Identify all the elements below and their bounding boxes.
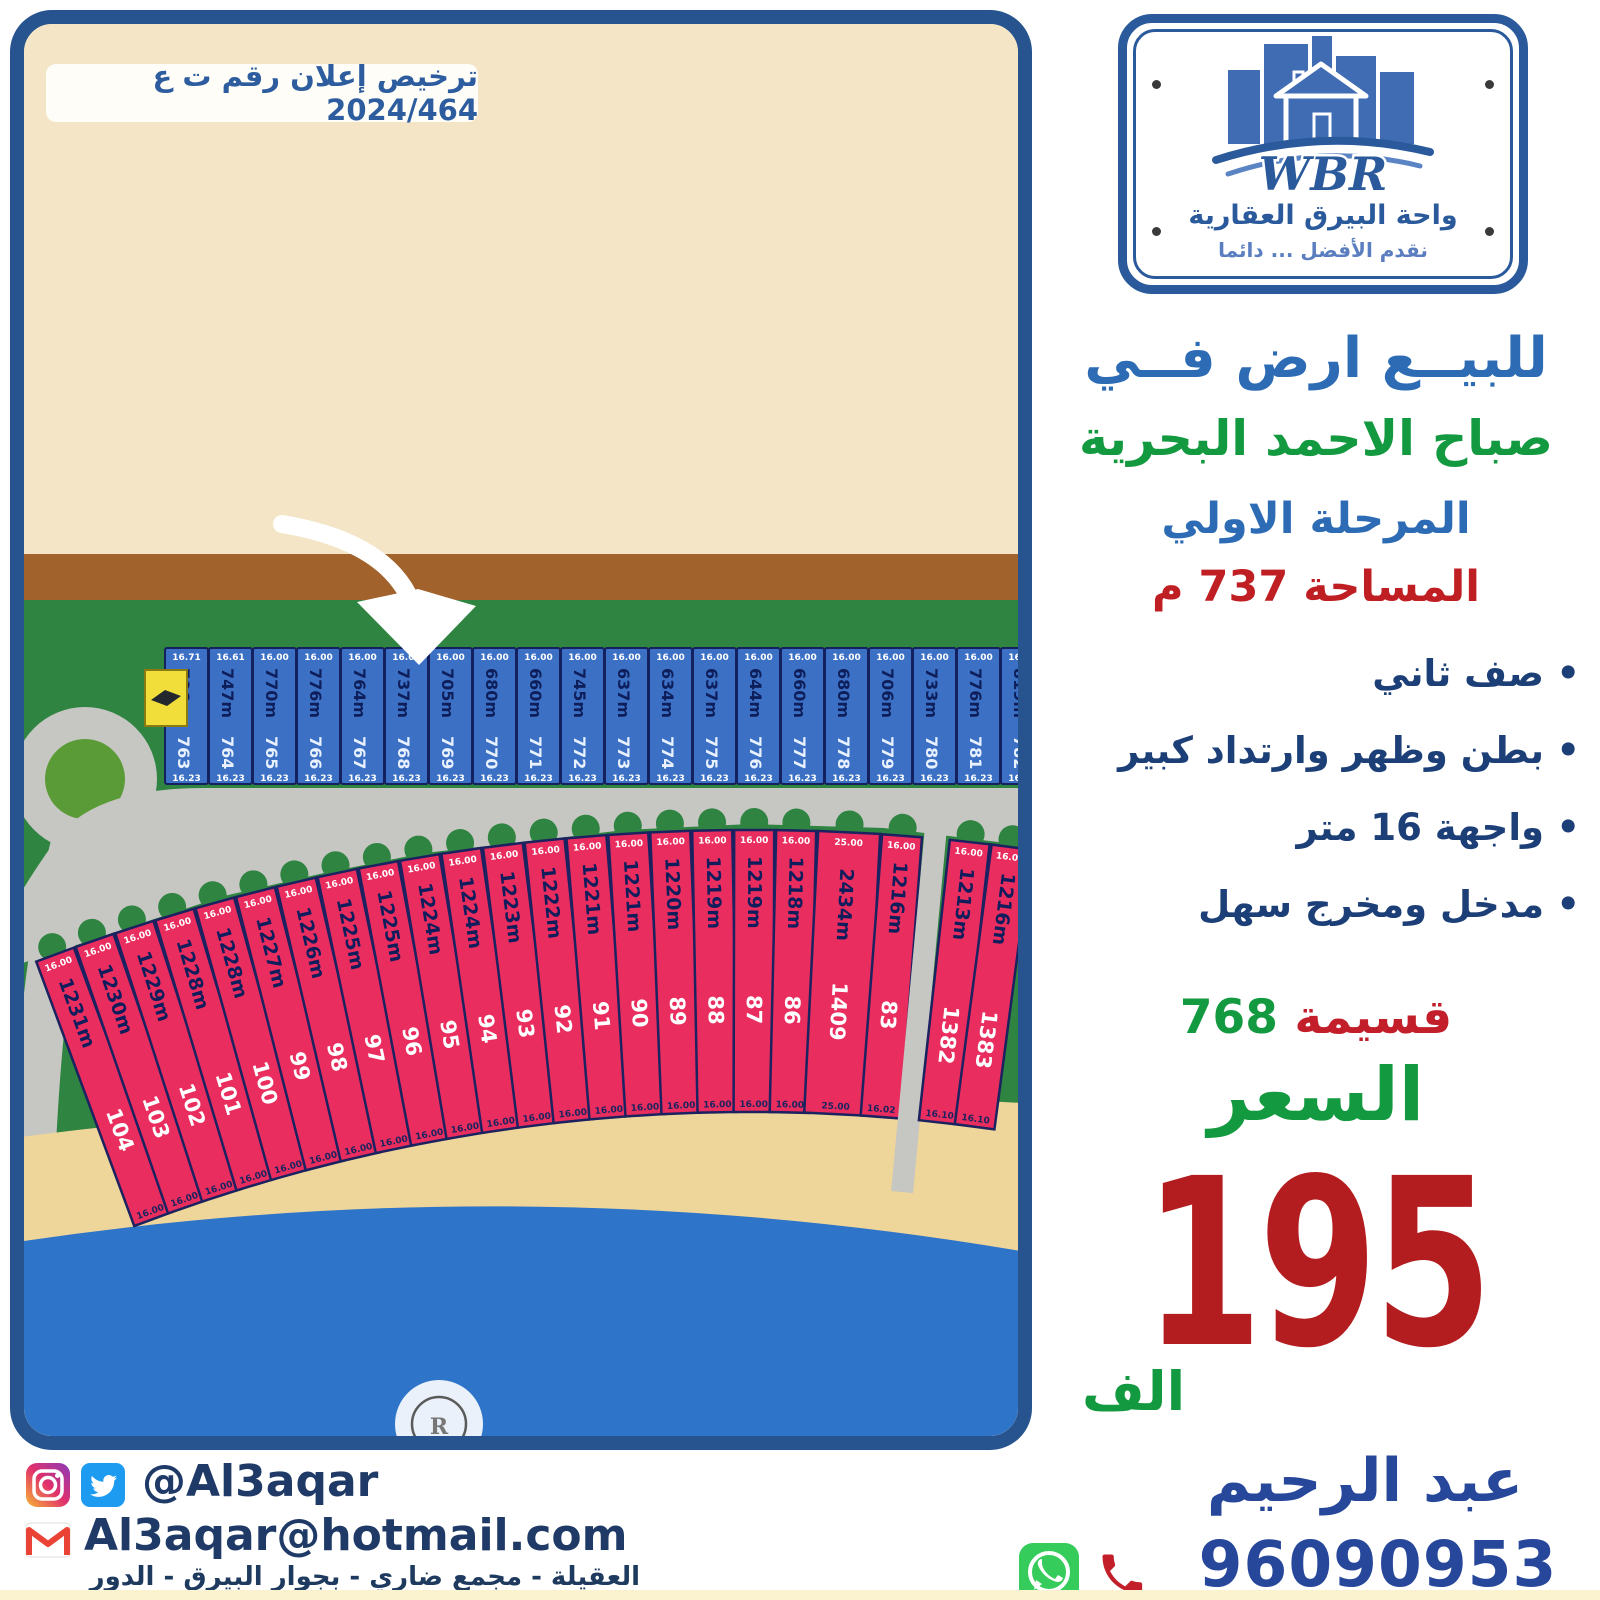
svg-text:16.61: 16.61: [216, 653, 244, 663]
svg-text:774: 774: [658, 736, 677, 769]
blue-plot: 16.0016.23705m769: [429, 648, 472, 784]
svg-text:89: 89: [665, 996, 690, 1026]
svg-text:764: 764: [218, 736, 237, 769]
blue-plot: 16.0016.23819m782: [1001, 648, 1018, 784]
svg-text:634m: 634m: [658, 668, 677, 718]
svg-text:95: 95: [435, 1018, 463, 1051]
svg-text:660m: 660m: [526, 668, 545, 718]
company-logo-plaque: WBR واحة البيرق العقارية نقدم الأفضل ...…: [1118, 14, 1528, 294]
svg-text:1219m: 1219m: [702, 856, 725, 929]
svg-text:90: 90: [626, 998, 652, 1029]
gmail-icon[interactable]: [25, 1522, 71, 1558]
svg-text:16.00: 16.00: [656, 837, 685, 848]
parcel-label: قسيمة: [1294, 990, 1452, 1045]
parcel-line: قسيمة 768: [1040, 990, 1592, 1045]
svg-text:16.00: 16.00: [524, 653, 552, 663]
svg-text:25.00: 25.00: [821, 1101, 850, 1112]
subdivision-map: 16.0016.001231m10416.0016.001230m10316.0…: [10, 10, 1032, 1450]
blue-plot: 16.0016.23733m780: [913, 648, 956, 784]
svg-text:87: 87: [742, 995, 766, 1024]
svg-text:772: 772: [570, 736, 589, 769]
blue-plot: 16.0016.23680m778: [825, 648, 868, 784]
blue-plot: 16.0016.23764m767: [341, 648, 384, 784]
svg-text:16.00: 16.00: [667, 1101, 696, 1112]
svg-text:782: 782: [1010, 736, 1018, 769]
svg-text:637m: 637m: [702, 668, 721, 718]
svg-text:93: 93: [511, 1008, 538, 1040]
svg-text:16.23: 16.23: [392, 774, 420, 784]
blue-plot: 16.0016.23737m768: [385, 648, 428, 784]
svg-text:16.23: 16.23: [260, 774, 288, 784]
price-label: السعر: [1040, 1052, 1592, 1138]
blue-plot: 16.0016.23706m779: [869, 648, 912, 784]
svg-text:94: 94: [473, 1012, 501, 1044]
svg-text:745m: 745m: [570, 668, 589, 718]
headline-location: صباح الاحمد البحرية: [1040, 410, 1592, 467]
svg-text:16.23: 16.23: [172, 774, 200, 784]
svg-text:16.00: 16.00: [260, 653, 288, 663]
svg-text:781: 781: [966, 736, 985, 769]
svg-text:773: 773: [614, 736, 633, 769]
svg-text:768: 768: [394, 736, 413, 769]
svg-text:680m: 680m: [834, 668, 853, 718]
svg-text:770m: 770m: [262, 668, 281, 718]
headline-for-sale: للبيــع ارض فــي: [1040, 326, 1592, 391]
email-address[interactable]: Al3aqar@hotmail.com: [84, 1510, 628, 1561]
svg-text:16.00: 16.00: [304, 653, 332, 663]
svg-text:25.00: 25.00: [834, 838, 863, 849]
price-value: 195: [1112, 1148, 1520, 1380]
svg-text:767: 767: [350, 736, 369, 769]
svg-text:1409: 1409: [825, 982, 852, 1042]
svg-text:16.00: 16.00: [436, 653, 464, 663]
skyline-house-logo-icon: WBR: [1198, 34, 1448, 198]
svg-text:16.23: 16.23: [656, 774, 684, 784]
svg-text:16.00: 16.00: [782, 836, 811, 847]
svg-text:777: 777: [790, 736, 809, 769]
svg-text:1218m: 1218m: [783, 856, 807, 929]
headline-area: المساحة 737 م: [1040, 562, 1592, 612]
svg-text:16.00: 16.00: [876, 653, 904, 663]
svg-text:16.23: 16.23: [612, 774, 640, 784]
svg-text:770: 770: [482, 736, 501, 769]
agent-name: عبد الرحيم: [1150, 1446, 1580, 1516]
blue-plot: 16.0016.23680m770: [473, 648, 516, 784]
svg-text:680m: 680m: [482, 668, 501, 718]
screw-dot: [1485, 80, 1494, 89]
blue-plot: 16.0016.23770m765: [253, 648, 296, 784]
svg-text:16.23: 16.23: [304, 774, 332, 784]
twitter-icon[interactable]: [80, 1462, 126, 1508]
svg-text:16.23: 16.23: [568, 774, 596, 784]
svg-text:1220m: 1220m: [660, 857, 685, 931]
svg-text:16.00: 16.00: [832, 653, 860, 663]
blue-plot: 16.0016.23776m766: [297, 648, 340, 784]
bottom-accent-strip: [0, 1590, 1600, 1600]
svg-text:819m: 819m: [1010, 668, 1018, 718]
feature-item: بطن وظهر وارتداد كبير: [1060, 729, 1580, 772]
svg-text:91: 91: [588, 1000, 614, 1031]
svg-text:16.23: 16.23: [876, 774, 904, 784]
blue-plot: 16.0016.23634m774: [649, 648, 692, 784]
blue-plot: 16.0016.23745m772: [561, 648, 604, 784]
blue-plot: 16.0016.23660m771: [517, 648, 560, 784]
svg-text:16.23: 16.23: [348, 774, 376, 784]
svg-text:2434m: 2434m: [832, 868, 858, 942]
svg-text:88: 88: [703, 995, 728, 1025]
logo-wbr-text: WBR: [1259, 147, 1388, 198]
sea: [24, 1206, 1018, 1436]
svg-text:16.00: 16.00: [348, 653, 376, 663]
svg-text:733m: 733m: [922, 668, 941, 718]
svg-text:16.23: 16.23: [920, 774, 948, 784]
instagram-icon[interactable]: [25, 1462, 71, 1508]
price-unit: الف: [1082, 1360, 1185, 1423]
svg-text:764m: 764m: [350, 668, 369, 718]
pink-plot: 16.0016.001219m87: [734, 808, 775, 1112]
svg-text:766: 766: [306, 736, 325, 769]
blue-plot: 16.0016.23644m776: [737, 648, 780, 784]
svg-text:16.00: 16.00: [775, 1100, 804, 1111]
feature-item: صف ثاني: [1060, 652, 1580, 695]
svg-text:16.23: 16.23: [436, 774, 464, 784]
svg-text:16.00: 16.00: [700, 653, 728, 663]
svg-text:778: 778: [834, 736, 853, 769]
company-slogan: نقدم الأفضل ... دائما: [1136, 238, 1510, 262]
svg-text:92: 92: [550, 1003, 577, 1035]
svg-text:16.23: 16.23: [524, 774, 552, 784]
svg-text:1219m: 1219m: [743, 856, 765, 929]
company-name: واحة البيرق العقارية: [1136, 200, 1510, 231]
feature-item: واجهة 16 متر: [1060, 806, 1580, 849]
svg-text:R: R: [430, 1414, 449, 1436]
svg-text:16.23: 16.23: [480, 774, 508, 784]
svg-text:765: 765: [262, 736, 281, 769]
svg-text:16.00: 16.00: [1008, 653, 1018, 663]
svg-text:16.71: 16.71: [172, 653, 200, 663]
svg-text:16.00: 16.00: [614, 839, 643, 851]
feature-list: صف ثاني بطن وظهر وارتداد كبير واجهة 16 م…: [1060, 652, 1580, 960]
blue-plot: 16.0016.23660m777: [781, 648, 824, 784]
svg-text:763: 763: [174, 736, 193, 769]
utility-box-icon: [145, 670, 187, 726]
screw-dot: [1152, 80, 1161, 89]
brown-road: [24, 554, 1018, 600]
blue-plot: 16.0016.23776m781: [957, 648, 1000, 784]
blue-plot-row: 16.7116.23706m76316.6116.23747m76416.001…: [165, 648, 1018, 784]
svg-text:16.00: 16.00: [739, 1100, 767, 1110]
svg-text:16.00: 16.00: [656, 653, 684, 663]
svg-text:16.00: 16.00: [920, 653, 948, 663]
svg-text:1221m: 1221m: [619, 859, 645, 933]
blue-plot: 16.0016.23637m773: [605, 648, 648, 784]
svg-text:779: 779: [878, 736, 897, 769]
svg-text:644m: 644m: [746, 668, 765, 718]
feature-item: مدخل ومخرج سهل: [1060, 883, 1580, 926]
svg-text:16.00: 16.00: [480, 653, 508, 663]
svg-text:16.23: 16.23: [832, 774, 860, 784]
svg-text:737m: 737m: [394, 668, 413, 718]
blue-plot: 16.0016.23637m775: [693, 648, 736, 784]
svg-text:769: 769: [438, 736, 457, 769]
plaque-inner-frame: WBR واحة البيرق العقارية نقدم الأفضل ...…: [1133, 29, 1513, 279]
svg-text:706m: 706m: [878, 668, 897, 718]
svg-text:16.23: 16.23: [1008, 774, 1018, 784]
svg-text:16.00: 16.00: [703, 1100, 732, 1111]
svg-text:16.23: 16.23: [700, 774, 728, 784]
svg-text:660m: 660m: [790, 668, 809, 718]
headline-phase: المرحلة الاولي: [1040, 494, 1592, 544]
svg-text:16.00: 16.00: [698, 836, 727, 847]
svg-text:705m: 705m: [438, 668, 457, 718]
svg-text:86: 86: [780, 995, 805, 1025]
svg-text:776m: 776m: [966, 668, 985, 718]
license-badge: ترخيص إعلان رقم ت ع 2024/464: [46, 64, 478, 122]
svg-text:637m: 637m: [614, 668, 633, 718]
svg-text:16.00: 16.00: [740, 836, 768, 846]
svg-text:83: 83: [875, 999, 901, 1030]
license-text: ترخيص إعلان رقم ت ع 2024/464: [46, 59, 478, 127]
svg-text:776: 776: [746, 736, 765, 769]
svg-text:16.00: 16.00: [568, 653, 596, 663]
pink-plot: 16.0016.001219m88: [692, 808, 738, 1113]
svg-text:16.23: 16.23: [744, 774, 772, 784]
svg-text:775: 775: [702, 736, 721, 769]
blue-plot: 16.6116.23747m764: [209, 648, 252, 784]
svg-text:780: 780: [922, 736, 941, 769]
svg-text:16.23: 16.23: [964, 774, 992, 784]
svg-text:16.00: 16.00: [788, 653, 816, 663]
svg-text:16.00: 16.00: [612, 653, 640, 663]
svg-text:16.00: 16.00: [964, 653, 992, 663]
svg-text:16.23: 16.23: [216, 774, 244, 784]
social-handle[interactable]: @Al3aqar: [142, 1456, 378, 1507]
svg-text:771: 771: [526, 736, 545, 769]
svg-text:747m: 747m: [218, 668, 237, 718]
svg-text:16.00: 16.00: [631, 1102, 660, 1114]
svg-text:776m: 776m: [306, 668, 325, 718]
svg-text:16.23: 16.23: [788, 774, 816, 784]
parcel-number: 768: [1180, 990, 1278, 1045]
svg-text:16.00: 16.00: [744, 653, 772, 663]
